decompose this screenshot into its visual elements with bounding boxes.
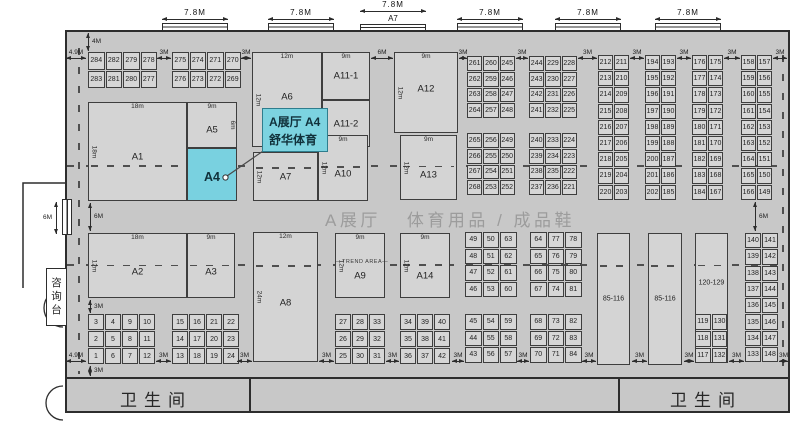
booth-132[interactable]: 132 [712, 348, 728, 364]
booth-219[interactable]: 219 [598, 168, 613, 183]
booth-83[interactable]: 83 [565, 331, 582, 347]
booth-grid: 455459445558435657 [465, 314, 517, 363]
area-85-116[interactable]: 85-116 [597, 233, 630, 365]
booth-274[interactable]: 274 [190, 52, 207, 70]
booth-grid: 272833262932253031 [335, 314, 385, 364]
booth-133[interactable]: 133 [745, 347, 761, 362]
booth-155[interactable]: 155 [757, 87, 772, 102]
booth-161[interactable]: 161 [741, 104, 756, 119]
booth-199[interactable]: 199 [645, 136, 660, 151]
booth-235[interactable]: 235 [545, 165, 560, 180]
booth-50[interactable]: 50 [483, 232, 500, 248]
booth-217[interactable]: 217 [598, 136, 613, 151]
booth-68[interactable]: 68 [530, 314, 547, 330]
booth-269[interactable]: 269 [225, 71, 242, 89]
hall-caption-category: 体育用品 / 成品鞋 [407, 206, 575, 231]
width-dim-label: 18m [89, 235, 186, 242]
booth-227[interactable]: 227 [562, 72, 577, 87]
booth-251[interactable]: 251 [500, 165, 515, 180]
area-label: A10 [319, 170, 367, 180]
booth-201[interactable]: 201 [645, 168, 660, 183]
booth-202[interactable]: 202 [645, 185, 660, 200]
booth-216[interactable]: 216 [598, 120, 613, 135]
booth-17[interactable]: 17 [189, 331, 205, 347]
booth-255[interactable]: 255 [483, 149, 498, 164]
booth-258[interactable]: 258 [483, 88, 498, 103]
booth-16[interactable]: 16 [189, 314, 205, 330]
booth-198[interactable]: 198 [645, 120, 660, 135]
booth-243[interactable]: 243 [529, 72, 544, 87]
booth-154[interactable]: 154 [757, 104, 772, 119]
booth-14[interactable]: 14 [172, 331, 188, 347]
booth-grid: 495063485162475261465360 [465, 232, 517, 297]
booth-187[interactable]: 187 [661, 152, 676, 167]
booth-267[interactable]: 267 [467, 165, 482, 180]
booth-200[interactable]: 200 [645, 152, 660, 167]
entrance-dim-arrow [162, 19, 228, 20]
booth-207[interactable]: 207 [614, 120, 629, 135]
booth-43[interactable]: 43 [465, 347, 482, 363]
booth-172[interactable]: 172 [708, 104, 723, 119]
booth-179[interactable]: 179 [692, 104, 707, 119]
booth-212[interactable]: 212 [598, 55, 613, 70]
booth-147[interactable]: 147 [762, 331, 778, 346]
booth-225[interactable]: 225 [562, 103, 577, 118]
booth-209[interactable]: 209 [614, 87, 629, 102]
booth-229[interactable]: 229 [545, 56, 560, 71]
booth-58[interactable]: 58 [500, 331, 517, 347]
booth-250[interactable]: 250 [500, 149, 515, 164]
booth-246[interactable]: 246 [500, 72, 515, 87]
booth-54[interactable]: 54 [483, 314, 500, 330]
area-A1[interactable]: 18m18mA1 [88, 102, 187, 201]
booth-210[interactable]: 210 [614, 71, 629, 86]
booth-184[interactable]: 184 [692, 185, 707, 200]
booth-259[interactable]: 259 [483, 72, 498, 87]
booth-47[interactable]: 47 [465, 265, 482, 281]
area-A4[interactable]: A4 [187, 148, 237, 201]
area-A7[interactable]: 12mA7 [253, 152, 318, 201]
booth-62[interactable]: 62 [500, 249, 517, 265]
entrance[interactable]: 7.8M [162, 1, 228, 31]
area-label: 85-116 [598, 296, 629, 303]
booth-263[interactable]: 263 [467, 88, 482, 103]
aisle-dashed-line-left [78, 48, 80, 374]
booth-178[interactable]: 178 [692, 87, 707, 102]
booth-272[interactable]: 272 [207, 71, 224, 89]
booth-238[interactable]: 238 [529, 165, 544, 180]
booth-167[interactable]: 167 [708, 185, 723, 200]
booth-grid: 1581571591561601551611541621531631521641… [741, 55, 772, 200]
booth-175[interactable]: 175 [708, 55, 723, 70]
booth-11[interactable]: 11 [139, 331, 155, 347]
booth-148[interactable]: 148 [762, 347, 778, 362]
booth-261[interactable]: 261 [467, 56, 482, 71]
area-A14[interactable]: 9m12mA14 [400, 233, 450, 298]
booth-38[interactable]: 38 [417, 331, 433, 347]
booth-236[interactable]: 236 [545, 180, 560, 195]
area-A2[interactable]: 18m12mA2 [88, 233, 187, 298]
booth-grid: 240233224239234223238235222237236221 [529, 133, 577, 195]
booth-233[interactable]: 233 [545, 133, 560, 148]
booth-165[interactable]: 165 [741, 168, 756, 183]
area-A12[interactable]: 9m12mA12 [394, 52, 458, 133]
dimension-3M: 3M [386, 361, 399, 362]
booth-249[interactable]: 249 [500, 133, 515, 148]
booth-137[interactable]: 137 [745, 282, 761, 297]
booth-135[interactable]: 135 [745, 314, 761, 329]
booth-159[interactable]: 159 [741, 71, 756, 86]
booth-266[interactable]: 266 [467, 149, 482, 164]
booth-71[interactable]: 71 [548, 347, 565, 363]
booth-196[interactable]: 196 [645, 87, 660, 102]
booth-230[interactable]: 230 [545, 72, 560, 87]
booth-222[interactable]: 222 [562, 165, 577, 180]
booth-1[interactable]: 1 [88, 348, 104, 364]
dimension-3M: 3M [516, 58, 528, 59]
booth-30[interactable]: 30 [352, 348, 368, 364]
booth-145[interactable]: 145 [762, 298, 778, 313]
booth-3[interactable]: 3 [88, 314, 104, 330]
area-label: 85-116 [649, 296, 681, 303]
booth-166[interactable]: 166 [741, 185, 756, 200]
booth-23[interactable]: 23 [223, 331, 239, 347]
booth-241[interactable]: 241 [529, 103, 544, 118]
booth-177[interactable]: 177 [692, 71, 707, 86]
width-dim-label: 9m [401, 137, 456, 144]
booth-194[interactable]: 194 [645, 55, 660, 70]
booth-183[interactable]: 183 [692, 168, 707, 183]
booth-164[interactable]: 164 [741, 152, 756, 167]
booth-2[interactable]: 2 [88, 331, 104, 347]
booth-221[interactable]: 221 [562, 180, 577, 195]
booth-278[interactable]: 278 [141, 52, 158, 70]
booth-139[interactable]: 139 [745, 249, 761, 264]
booth-248[interactable]: 248 [500, 103, 515, 118]
booth-52[interactable]: 52 [483, 265, 500, 281]
booth-215[interactable]: 215 [598, 104, 613, 119]
booth-78[interactable]: 78 [565, 232, 582, 248]
booth-153[interactable]: 153 [757, 120, 772, 135]
booth-119[interactable]: 119 [695, 314, 711, 330]
booth-18[interactable]: 18 [189, 348, 205, 364]
booth-277[interactable]: 277 [141, 71, 158, 89]
booth-65[interactable]: 65 [530, 249, 547, 265]
booth-244[interactable]: 244 [529, 56, 544, 71]
booth-25[interactable]: 25 [335, 348, 351, 364]
booth-218[interactable]: 218 [598, 152, 613, 167]
booth-169[interactable]: 169 [708, 152, 723, 167]
entrance-name-label: A7 [388, 15, 398, 23]
booth-205[interactable]: 205 [614, 152, 629, 167]
booth-152[interactable]: 152 [757, 136, 772, 151]
booth-162[interactable]: 162 [741, 120, 756, 135]
booth-203[interactable]: 203 [614, 185, 629, 200]
booth-262[interactable]: 262 [467, 72, 482, 87]
booth-19[interactable]: 19 [206, 348, 222, 364]
booth-31[interactable]: 31 [369, 348, 385, 364]
booth-63[interactable]: 63 [500, 232, 517, 248]
booth-173[interactable]: 173 [708, 87, 723, 102]
booth-228[interactable]: 228 [562, 56, 577, 71]
booth-37[interactable]: 37 [417, 348, 433, 364]
booth-189[interactable]: 189 [661, 120, 676, 135]
booth-70[interactable]: 70 [530, 347, 547, 363]
booth-6[interactable]: 6 [105, 348, 121, 364]
booth-206[interactable]: 206 [614, 136, 629, 151]
booth-28[interactable]: 28 [352, 314, 368, 330]
booth-247[interactable]: 247 [500, 88, 515, 103]
booth-157[interactable]: 157 [757, 55, 772, 70]
area-A5[interactable]: 9m6mA5 [187, 102, 237, 148]
booth-136[interactable]: 136 [745, 298, 761, 313]
booth-57[interactable]: 57 [500, 347, 517, 363]
booth-234[interactable]: 234 [545, 149, 560, 164]
booth-284[interactable]: 284 [88, 52, 105, 70]
booth-144[interactable]: 144 [762, 282, 778, 297]
booth-72[interactable]: 72 [548, 331, 565, 347]
booth-181[interactable]: 181 [692, 136, 707, 151]
booth-270[interactable]: 270 [225, 52, 242, 70]
booth-276[interactable]: 276 [172, 71, 189, 89]
dimension-3M: 3M [632, 361, 647, 362]
booth-271[interactable]: 271 [207, 52, 224, 70]
booth-44[interactable]: 44 [465, 331, 482, 347]
booth-239[interactable]: 239 [529, 149, 544, 164]
area-label: A13 [401, 170, 456, 180]
booth-223[interactable]: 223 [562, 149, 577, 164]
booth-188[interactable]: 188 [661, 136, 676, 151]
booth-186[interactable]: 186 [661, 168, 676, 183]
booth-53[interactable]: 53 [483, 282, 500, 298]
booth-73[interactable]: 73 [548, 314, 565, 330]
booth-182[interactable]: 182 [692, 152, 707, 167]
booth-268[interactable]: 268 [467, 180, 482, 195]
booth-39[interactable]: 39 [417, 314, 433, 330]
booth-36[interactable]: 36 [400, 348, 416, 364]
booth-232[interactable]: 232 [545, 103, 560, 118]
booth-213[interactable]: 213 [598, 71, 613, 86]
booth-77[interactable]: 77 [548, 232, 565, 248]
booth-256[interactable]: 256 [483, 133, 498, 148]
entrance[interactable]: 7.8M [268, 1, 334, 31]
booth-281[interactable]: 281 [106, 71, 123, 89]
area-A11-1[interactable]: 9mA11-1 [322, 52, 370, 100]
booth-138[interactable]: 138 [745, 266, 761, 281]
booth-231[interactable]: 231 [545, 88, 560, 103]
booth-75[interactable]: 75 [548, 265, 565, 281]
booth-185[interactable]: 185 [661, 185, 676, 200]
area-label: A1 [89, 153, 186, 163]
booth-34[interactable]: 34 [400, 314, 416, 330]
booth-13[interactable]: 13 [172, 348, 188, 364]
booth-69[interactable]: 69 [530, 331, 547, 347]
booth-204[interactable]: 204 [614, 168, 629, 183]
area-dashed-line [256, 167, 315, 169]
booth-149[interactable]: 149 [757, 185, 772, 200]
booth-265[interactable]: 265 [467, 133, 482, 148]
booth-240[interactable]: 240 [529, 133, 544, 148]
booth-158[interactable]: 158 [741, 55, 756, 70]
booth-46[interactable]: 46 [465, 282, 482, 298]
booth-118[interactable]: 118 [695, 331, 711, 347]
booth-67[interactable]: 67 [530, 282, 547, 298]
width-dim-label: 9m [323, 54, 369, 61]
booth-27[interactable]: 27 [335, 314, 351, 330]
booth-214[interactable]: 214 [598, 87, 613, 102]
booth-224[interactable]: 224 [562, 133, 577, 148]
width-dim-label: 9m [188, 104, 236, 111]
booth-33[interactable]: 33 [369, 314, 385, 330]
booth-grid: 275274271270276273272269 [172, 52, 241, 88]
booth-143[interactable]: 143 [762, 266, 778, 281]
booth-45[interactable]: 45 [465, 314, 482, 330]
booth-220[interactable]: 220 [598, 185, 613, 200]
booth-8[interactable]: 8 [122, 331, 138, 347]
aisle-dashed-line-right [782, 55, 784, 373]
booth-79[interactable]: 79 [565, 249, 582, 265]
bottom-corridor: 卫生间 卫生间 [65, 377, 790, 413]
booth-273[interactable]: 273 [190, 71, 207, 89]
corridor-divider [249, 379, 251, 413]
booth-275[interactable]: 275 [172, 52, 189, 70]
entrance-dim-label: 7.8M [577, 9, 599, 17]
booth-257[interactable]: 257 [483, 103, 498, 118]
booth-190[interactable]: 190 [661, 104, 676, 119]
booth-208[interactable]: 208 [614, 104, 629, 119]
booth-grid: 2122112132102142092152082162072172062182… [598, 55, 629, 200]
area-label: 120-129 [696, 279, 727, 286]
booth-282[interactable]: 282 [106, 52, 123, 70]
area-A13[interactable]: 9m12mA13 [400, 135, 457, 200]
booth-82[interactable]: 82 [565, 314, 582, 330]
area-dashed-line [600, 265, 627, 267]
area-label: A4 [188, 171, 236, 184]
booth-49[interactable]: 49 [465, 232, 482, 248]
booth-283[interactable]: 283 [88, 71, 105, 89]
booth-48[interactable]: 48 [465, 249, 482, 265]
booth-279[interactable]: 279 [123, 52, 140, 70]
booth-21[interactable]: 21 [206, 314, 222, 330]
booth-20[interactable]: 20 [206, 331, 222, 347]
booth-5[interactable]: 5 [105, 331, 121, 347]
booth-59[interactable]: 59 [500, 314, 517, 330]
booth-grid: 284282279278283281280277 [88, 52, 157, 88]
booth-4[interactable]: 4 [105, 314, 121, 330]
booth-146[interactable]: 146 [762, 314, 778, 329]
entrance-door-icon [457, 23, 523, 31]
area-A9[interactable]: 9m12m—TREND AREA—A9 [335, 233, 385, 298]
booth-7[interactable]: 7 [122, 348, 138, 364]
entrance[interactable]: 7.8M [457, 1, 523, 31]
area-85-116[interactable]: 85-116 [648, 233, 682, 365]
entrance[interactable]: 7.8M [655, 1, 721, 31]
booth-56[interactable]: 56 [483, 347, 500, 363]
booth-264[interactable]: 264 [467, 103, 482, 118]
booth-9[interactable]: 9 [122, 314, 138, 330]
booth-81[interactable]: 81 [565, 282, 582, 298]
entrance[interactable]: 7.8M [555, 1, 621, 31]
booth-22[interactable]: 22 [223, 314, 239, 330]
booth-156[interactable]: 156 [757, 71, 772, 86]
booth-60[interactable]: 60 [500, 282, 517, 298]
booth-252[interactable]: 252 [500, 180, 515, 195]
booth-170[interactable]: 170 [708, 136, 723, 151]
dimension-3M: 3M [582, 361, 596, 362]
booth-174[interactable]: 174 [708, 71, 723, 86]
booth-41[interactable]: 41 [434, 331, 450, 347]
dimension-4M: 4M [88, 33, 89, 51]
booth-32[interactable]: 32 [369, 331, 385, 347]
booth-42[interactable]: 42 [434, 348, 450, 364]
booth-15[interactable]: 15 [172, 314, 188, 330]
booth-171[interactable]: 171 [708, 120, 723, 135]
booth-64[interactable]: 64 [530, 232, 547, 248]
booth-150[interactable]: 150 [757, 168, 772, 183]
booth-195[interactable]: 195 [645, 71, 660, 86]
booth-192[interactable]: 192 [661, 71, 676, 86]
booth-242[interactable]: 242 [529, 88, 544, 103]
booth-51[interactable]: 51 [483, 249, 500, 265]
booth-84[interactable]: 84 [565, 347, 582, 363]
entrance-A7[interactable]: 7.8MA7 [360, 1, 426, 31]
booth-134[interactable]: 134 [745, 331, 761, 346]
booth-197[interactable]: 197 [645, 104, 660, 119]
dimension-3M: 3M [452, 361, 464, 362]
booth-80[interactable]: 80 [565, 265, 582, 281]
booth-74[interactable]: 74 [548, 282, 565, 298]
booth-35[interactable]: 35 [400, 331, 416, 347]
booth-211[interactable]: 211 [614, 55, 629, 70]
area-dashed-line [403, 264, 447, 266]
booth-160[interactable]: 160 [741, 87, 756, 102]
booth-26[interactable]: 26 [335, 331, 351, 347]
booth-237[interactable]: 237 [529, 180, 544, 195]
booth-117[interactable]: 117 [695, 348, 711, 364]
booth-260[interactable]: 260 [483, 56, 498, 71]
booth-12[interactable]: 12 [139, 348, 155, 364]
booth-131[interactable]: 131 [712, 331, 728, 347]
booth-176[interactable]: 176 [692, 55, 707, 70]
booth-40[interactable]: 40 [434, 314, 450, 330]
booth-254[interactable]: 254 [483, 165, 498, 180]
booth-280[interactable]: 280 [123, 71, 140, 89]
booth-151[interactable]: 151 [757, 152, 772, 167]
booth-141[interactable]: 141 [762, 233, 778, 248]
booth-61[interactable]: 61 [500, 265, 517, 281]
booth-130[interactable]: 130 [712, 314, 728, 330]
booth-191[interactable]: 191 [661, 87, 676, 102]
booth-245[interactable]: 245 [500, 56, 515, 71]
booth-76[interactable]: 76 [548, 249, 565, 265]
booth-55[interactable]: 55 [483, 331, 500, 347]
booth-163[interactable]: 163 [741, 136, 756, 151]
booth-66[interactable]: 66 [530, 265, 547, 281]
area-A8[interactable]: 12m24mA8 [253, 232, 318, 362]
area-A3[interactable]: 9mA3 [187, 233, 235, 298]
booth-142[interactable]: 142 [762, 249, 778, 264]
booth-180[interactable]: 180 [692, 120, 707, 135]
booth-193[interactable]: 193 [661, 55, 676, 70]
booth-140[interactable]: 140 [745, 233, 761, 248]
booth-10[interactable]: 10 [139, 314, 155, 330]
booth-29[interactable]: 29 [352, 331, 368, 347]
entrance-dim-arrow [268, 19, 334, 20]
booth-253[interactable]: 253 [483, 180, 498, 195]
booth-168[interactable]: 168 [708, 168, 723, 183]
booth-226[interactable]: 226 [562, 88, 577, 103]
dimension-3M: 3M [156, 361, 171, 362]
